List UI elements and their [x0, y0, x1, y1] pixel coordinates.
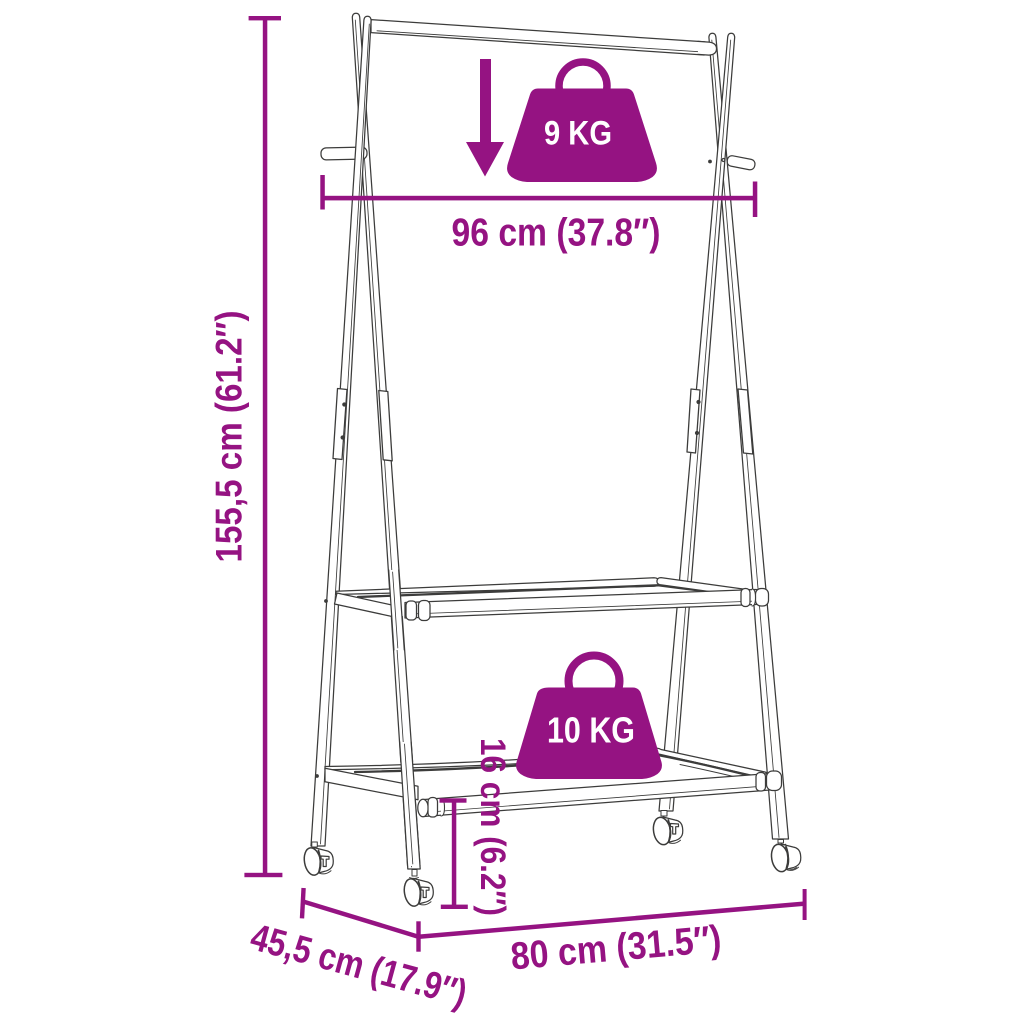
svg-text:16 cm (6.2″): 16 cm (6.2″) [473, 738, 512, 916]
svg-text:9 KG: 9 KG [544, 115, 612, 153]
svg-text:96 cm (37.8″): 96 cm (37.8″) [452, 212, 661, 255]
svg-text:10 KG: 10 KG [547, 710, 635, 751]
svg-text:155,5 cm (61.2″): 155,5 cm (61.2″) [208, 311, 250, 563]
